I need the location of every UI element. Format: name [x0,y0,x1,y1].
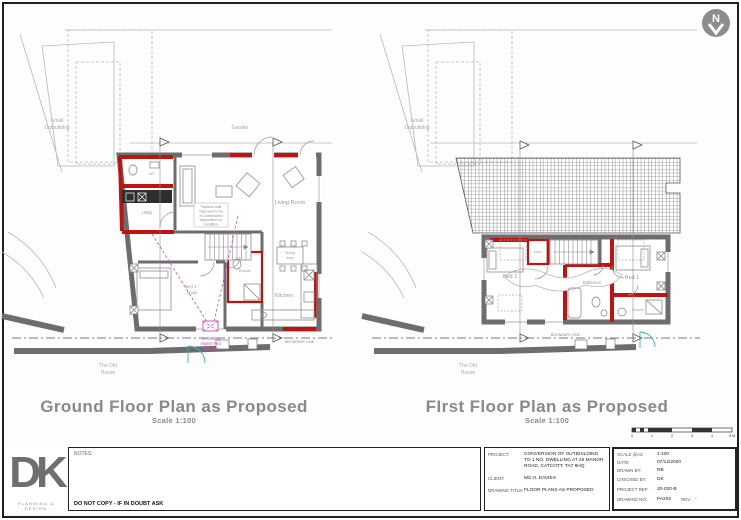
drawing-no-row: DRAWING No: PA202 REV: - [617,497,732,503]
first-plan-scale-note: Scale 1:100 [398,416,696,425]
label-small-outbuilding: Small [411,118,424,124]
label-bed2: Bed 2 [503,274,517,280]
checked-by-row: CHECKED BY: DK [617,477,732,483]
scale-tick: 1 [651,434,653,438]
label-ensuite: Ensuite [239,269,251,273]
label-old-house: The Old [459,363,477,369]
scale-tick: 3 [691,434,693,438]
first-boundary: BOUNDARY LINE [372,333,700,338]
scale-tick: 5 M [729,434,735,438]
project-ref-row: PROJECT REF: 20-020-B [617,487,732,493]
partition-note: dependent on [200,218,222,222]
drawing-title-label: DRAWING TITLE: [488,488,524,494]
drawing-no-label: DRAWING No: [617,497,657,503]
partition-note: condition [204,223,218,227]
ground-plan-scale-note: Scale 1:100 [28,416,320,425]
date-label: DATE: [617,460,657,466]
north-label: N [712,13,720,25]
label-dining: Area [286,256,293,260]
scale-label: SCALE @A3: [617,452,657,458]
label-small-outbuilding: Outbuilding [44,125,70,131]
drawn-by-value: RB [657,468,664,474]
date-row: DATE: 07/12/2020 [617,460,732,466]
first-old-house: The Old House [374,332,655,376]
floor-plans-canvas: Small Outbuilding Garden [0,0,741,445]
ground-old-house: The Old House [14,339,270,376]
drawing-sheet: Small Outbuilding Garden [0,0,741,520]
project-ref-value: 20-020-B [657,487,677,493]
label-dining: Dining [285,251,295,255]
label-boundary-line: BOUNDARY LINE [551,333,581,337]
scale-bar: 0 1 2 3 4 5 M [631,428,735,438]
scale-tick: 2 [671,434,673,438]
label-bathroom: Bathroom [583,280,602,285]
notes-box: NOTES: DO NOT COPY - IF IN DOUBT ASK [68,447,481,511]
north-arrow-icon: N [702,9,730,37]
drawing-title-value: FLOOR PLANS AS PROPOSED [524,488,594,494]
label-small-outbuilding: Small [51,118,64,124]
project-info-box: PROJECT: CONVERSION OF OUTBUILDING TO 1 … [484,447,610,511]
project-label: PROJECT: [488,452,524,458]
client-row: CLIENT: MS H. DAVIES [488,476,606,482]
notes-label: NOTES: [74,451,93,457]
label-old-house: House [101,370,116,376]
label-boundary-line: BOUNDARY LINE [285,340,315,344]
smoke-detector-note: Detector [203,346,219,351]
project-value: CONVERSION OF OUTBUILDING TO 1 NO. DWELL… [524,452,606,470]
do-not-copy-note: DO NOT COPY - IF IN DOUBT ASK [74,501,163,507]
drawing-meta-box: SCALE @A3: 1:100 DATE: 07/12/2020 DRAWN … [612,447,737,511]
label-bed3: Bed 3 / [185,284,199,289]
checked-by-label: CHECKED BY: [617,477,657,483]
checked-by-value: DK [657,477,664,483]
label-old-house: House [461,370,476,376]
label-old-house: The Old [99,363,117,369]
ground-plan-title: Ground Floor Plan as Proposed Scale 1:10… [28,398,320,425]
first-plan-title-text: FIrst Floor Plan as Proposed [398,398,696,416]
label-garden: Garden [232,125,249,131]
scale-tick: 4 [711,434,713,438]
dk-logo-tagline: PLANNING & DESIGN [6,501,66,511]
label-small-outbuilding: Outbuilding [404,125,430,131]
first-plan-title: FIrst Floor Plan as Proposed Scale 1:100 [398,398,696,425]
label-linen: Linen [534,250,543,254]
project-ref-label: PROJECT REF: [617,487,657,493]
first-stairs [550,240,598,264]
date-value: 07/12/2020 [657,460,681,466]
drawn-by-label: DRAWN BY: [617,468,657,474]
client-label: CLIENT: [488,476,524,482]
ground-plan-title-text: Ground Floor Plan as Proposed [28,398,320,416]
label-bed1: Bed 1 [625,275,639,281]
rev-label: REV: [681,497,691,502]
scale-row: SCALE @A3: 1:100 [617,452,732,458]
label-ensuite: Ensuite [632,308,644,312]
drawing-title-row: DRAWING TITLE: FLOOR PLANS AS PROPOSED [488,488,606,494]
ground-stairs [205,234,251,260]
label-utility: Utility [142,210,153,215]
label-kitchen: Kitchen [275,293,293,299]
dk-logo: DK PLANNING & DESIGN [6,448,66,514]
partition-note: re-constructed [200,214,223,218]
dk-logo-letters: DK [6,448,66,498]
first-floor-plan: Small Outbuilding [362,30,700,376]
partition-note: may need to be [199,209,224,213]
scale-tick: 0 [631,434,633,438]
first-roof-hatch [456,158,680,233]
label-living-room: Living Room [275,200,306,206]
partition-note: Partition wall [201,205,222,209]
drawn-by-row: DRAWN BY: RB [617,468,732,474]
client-value: MS H. DAVIES [524,476,556,482]
project-row: PROJECT: CONVERSION OF OUTBUILDING TO 1 … [488,452,606,470]
ground-boundary: BOUNDARY LINE [12,338,332,344]
ground-floor-plan: Small Outbuilding Garden [2,30,332,376]
label-wc: WC [149,172,155,176]
drawing-no-value: PA202 [657,497,671,503]
label-bed3: Study [187,290,199,295]
rev-value: - [695,497,697,502]
scale-value: 1:100 [657,452,669,458]
